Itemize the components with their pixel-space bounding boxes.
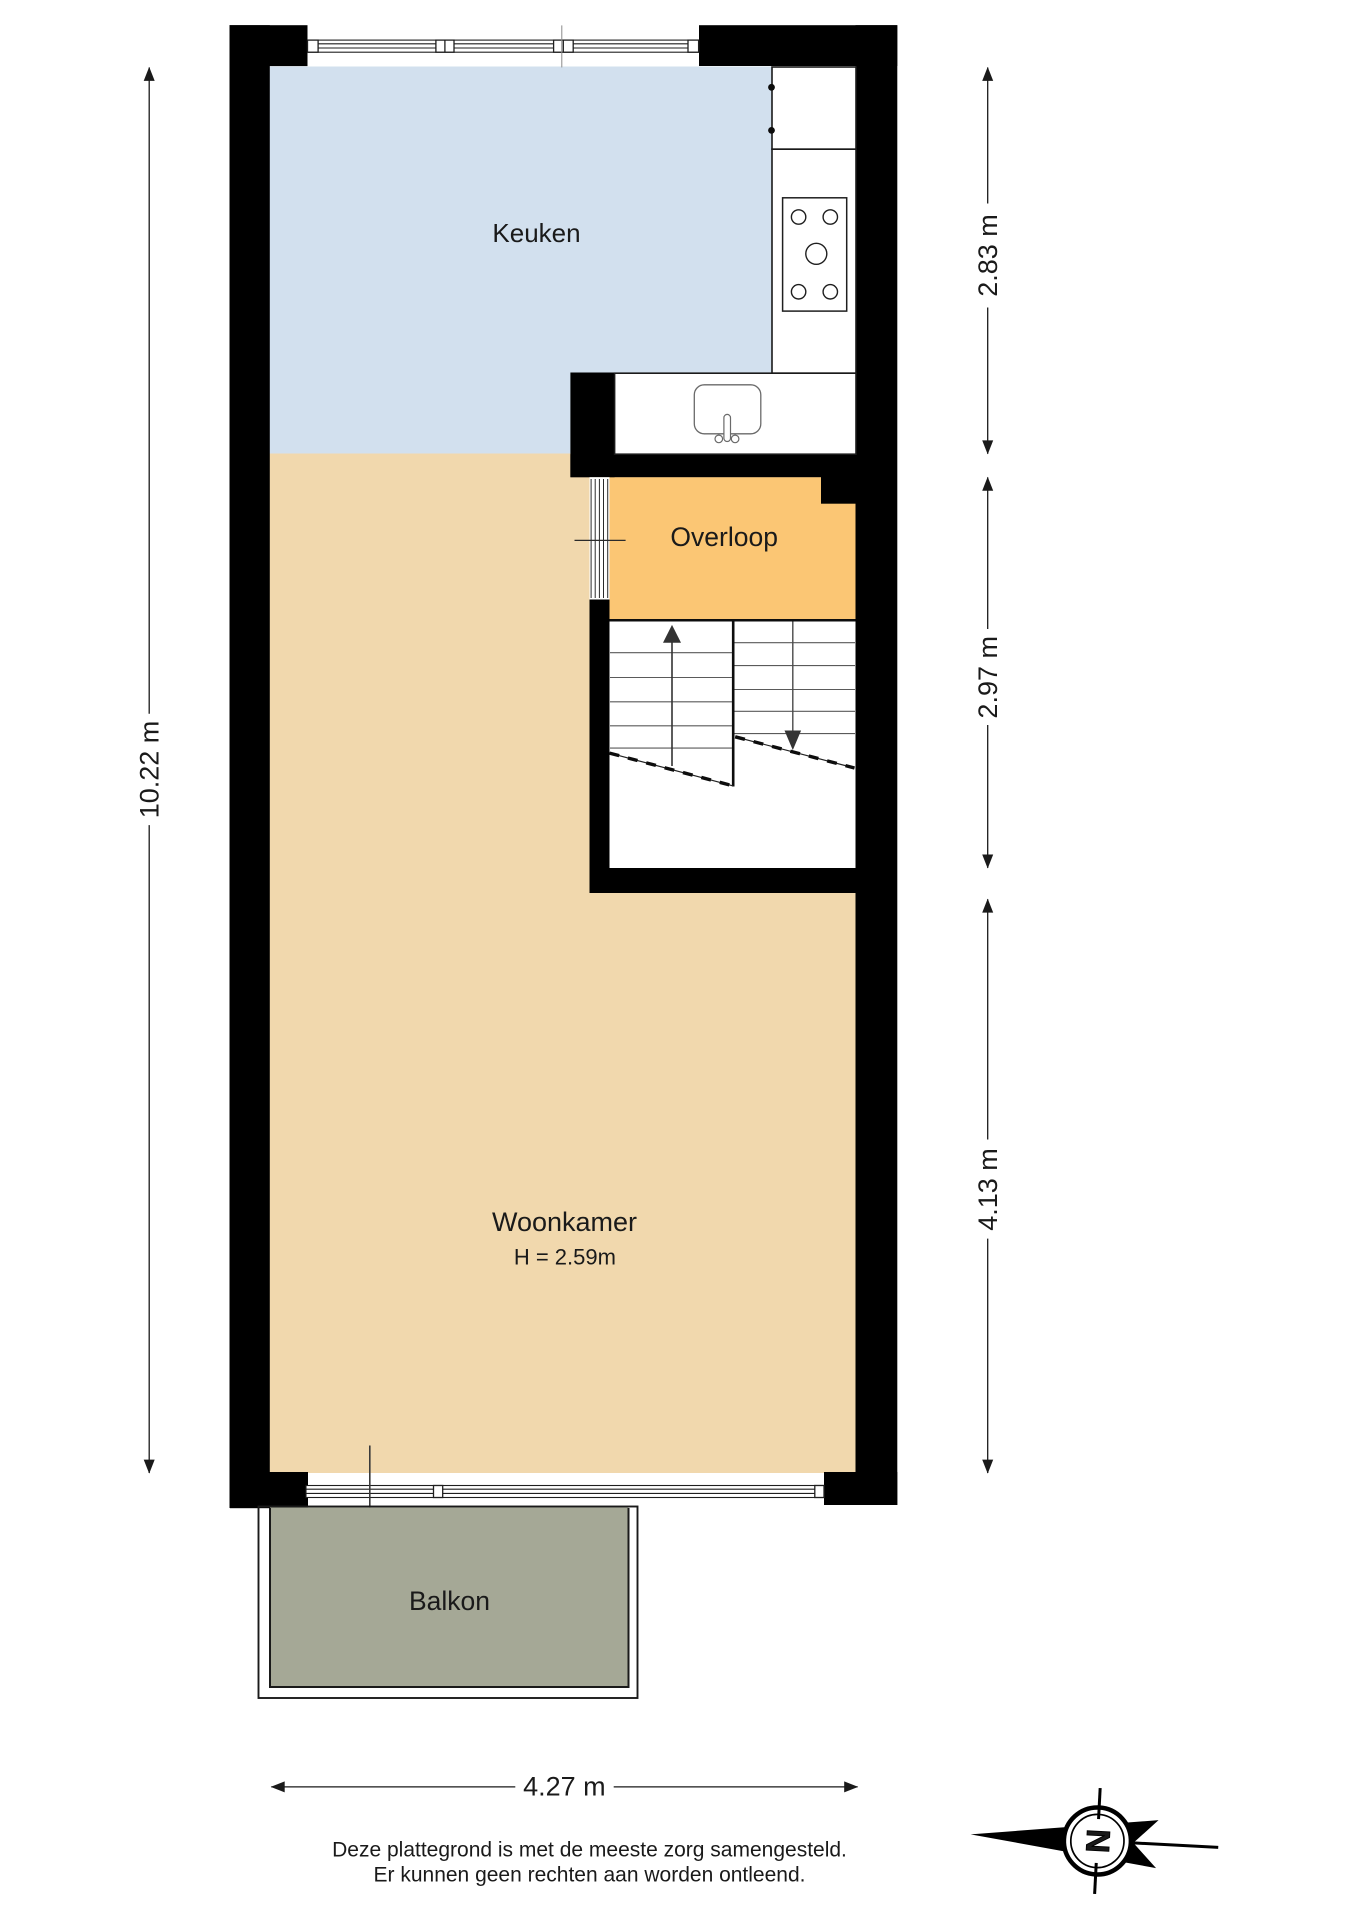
svg-text:Er kunnen geen rechten aan wor: Er kunnen geen rechten aan worden ontlee… — [374, 1864, 806, 1887]
svg-text:Woonkamer: Woonkamer — [492, 1207, 637, 1237]
svg-text:4.27 m: 4.27 m — [523, 1771, 606, 1801]
svg-text:Balkon: Balkon — [409, 1586, 490, 1616]
svg-text:2.97 m: 2.97 m — [973, 636, 1003, 719]
svg-text:N: N — [1079, 1828, 1117, 1854]
svg-text:2.83 m: 2.83 m — [973, 214, 1003, 297]
svg-text:Keuken: Keuken — [492, 218, 580, 248]
svg-text:H = 2.59m: H = 2.59m — [514, 1245, 616, 1270]
svg-text:Deze plattegrond is met de mee: Deze plattegrond is met de meeste zorg s… — [332, 1839, 847, 1862]
svg-text:4.13 m: 4.13 m — [973, 1148, 1003, 1231]
svg-text:Overloop: Overloop — [670, 522, 778, 552]
svg-text:10.22 m: 10.22 m — [135, 721, 165, 819]
